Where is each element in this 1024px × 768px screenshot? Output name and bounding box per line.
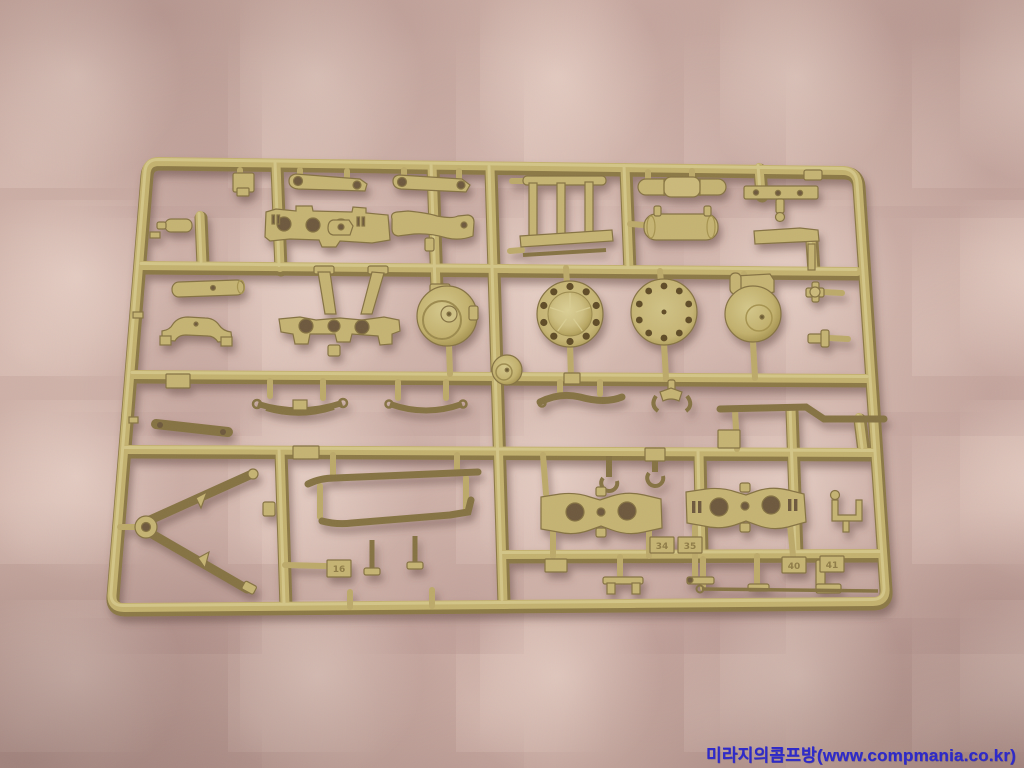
trail-legs (135, 469, 258, 595)
right-edge-cross-part (806, 282, 824, 302)
curved-arm (539, 395, 623, 406)
hinged-drum-cover (725, 273, 781, 342)
bottom-bracket-2 (687, 577, 714, 584)
flat-drilled-disc (631, 279, 697, 345)
part-tag-34: 34 (656, 542, 669, 552)
thin-long-rod (697, 586, 879, 593)
model-kit-sprue: 16 34 35 40 41 (0, 0, 1024, 768)
tow-link-bar (156, 422, 228, 435)
flat-l-bar (754, 228, 819, 270)
part-tag-16: 16 (333, 565, 346, 575)
bogie-plate-2 (686, 483, 806, 532)
part-tag-35: 35 (684, 542, 697, 552)
part-tag-40: 40 (788, 562, 801, 572)
domed-hub-disc (537, 281, 603, 347)
axle-plate (279, 317, 400, 356)
bogie-plate-1 (541, 487, 662, 537)
sprue-gates (120, 170, 848, 607)
small-bracket (328, 220, 353, 235)
small-cylinder (157, 219, 192, 232)
bottom-bracket-1 (603, 577, 643, 594)
arch-bracket (160, 317, 232, 346)
segmented-cylinder (638, 177, 726, 197)
photo-scene: 16 34 35 40 41 미라지의콤프방(www.compmania.co.… (0, 0, 1024, 768)
bolt-strip (744, 186, 818, 222)
tube-part (172, 280, 245, 298)
small-vertical-rods (364, 536, 423, 575)
watermark-text: 미라지의콤프방(www.compmania.co.kr) (706, 741, 1016, 766)
final-drive-housing (417, 284, 478, 346)
bent-rod-lower (322, 500, 471, 524)
tank-cylinder (644, 206, 718, 240)
right-edge-l-part (808, 330, 829, 347)
part-tag-41: 41 (826, 561, 839, 571)
link-bar-1 (289, 174, 367, 191)
tiny-bracket (263, 502, 275, 516)
leaf-spring-1 (253, 399, 347, 414)
small-hub-disc (492, 355, 522, 385)
u-bracket (831, 491, 863, 533)
small-block-part (233, 173, 254, 196)
curved-bracket (392, 211, 474, 251)
long-bent-rod (720, 407, 884, 419)
sprue-body: 16 34 35 40 41 (111, 160, 886, 611)
leaf-spring-2 (386, 401, 467, 411)
hook-part-1 (601, 456, 617, 491)
